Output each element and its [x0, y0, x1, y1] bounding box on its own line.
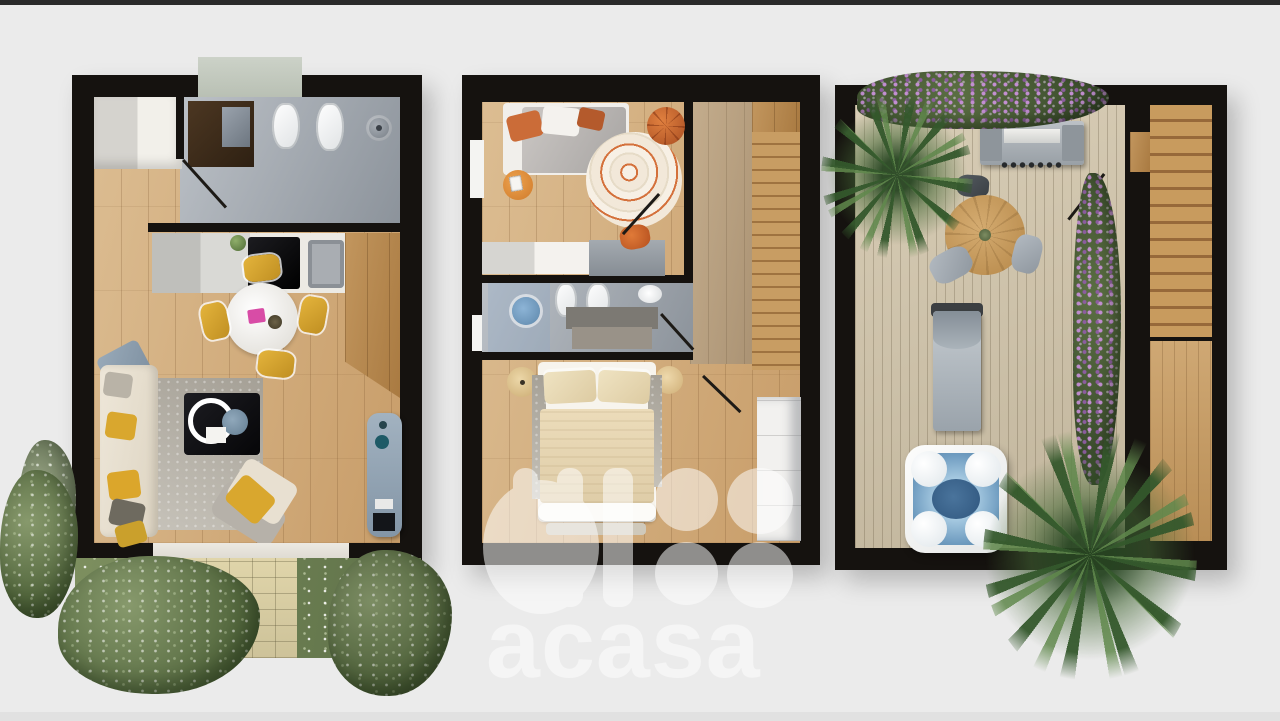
kitchen-plant	[230, 235, 246, 251]
hot-tub-seat-3	[911, 511, 947, 547]
table-centerpiece	[979, 229, 991, 241]
shower-head-center	[376, 125, 382, 131]
coffee-table-notepad	[206, 427, 226, 443]
watermark: acasa	[478, 438, 808, 690]
washbasin	[638, 285, 662, 303]
grill-shelf-right	[1062, 125, 1084, 161]
kitchen-sink	[308, 240, 344, 288]
grill-hood	[1004, 129, 1060, 143]
acasa-logo-bar-1	[513, 468, 538, 607]
hall-wardrobe	[94, 97, 182, 169]
acasa-logo-circle-1	[655, 468, 718, 531]
daybed-label-dark	[373, 513, 395, 531]
sofa-pillow-yellow-1	[104, 411, 137, 441]
kitchen-wall	[148, 223, 400, 232]
dining-chair-south	[257, 349, 296, 379]
sofa-pillow-gray	[102, 371, 133, 399]
staircase	[752, 132, 800, 370]
palm-tree-bottom	[983, 423, 1197, 687]
daybed-label-light	[375, 499, 393, 509]
wall-bed1-bath	[482, 275, 693, 283]
stair-connector	[1130, 132, 1150, 172]
left-door-upper	[470, 140, 484, 198]
nightstand-left-knob	[520, 380, 525, 385]
daybed-dot-large	[375, 435, 389, 449]
dining-chair-north	[243, 253, 282, 283]
watermark-brand: acasa	[486, 588, 761, 700]
toilet	[272, 103, 300, 149]
acasa-logo-bar-2	[557, 468, 583, 607]
sun-lounger	[933, 311, 981, 431]
daybed	[367, 413, 402, 537]
bedside-photo	[509, 175, 523, 192]
wall-stub	[176, 97, 184, 159]
bed2-pillow-left	[543, 370, 597, 405]
bed2-pillow-right	[597, 370, 651, 405]
entrance-mat	[198, 57, 302, 97]
table-gift-box	[247, 308, 266, 324]
tree-bottom-center	[328, 550, 452, 696]
shower-drain	[512, 297, 540, 325]
daybed-dot-small	[379, 421, 387, 429]
tree-bottom-left	[58, 556, 260, 694]
bottom-border-line	[0, 712, 1280, 721]
top-border-bar	[0, 0, 1280, 5]
palm-tree-top	[821, 91, 973, 259]
pouf	[647, 107, 685, 145]
hot-tub-center	[932, 479, 980, 519]
grill-knobs	[1000, 161, 1064, 169]
bush-left	[0, 470, 78, 618]
lounger-headrest	[933, 311, 981, 349]
bedroom1-wardrobe	[482, 242, 589, 274]
sofa-pillow-yellow-2	[106, 469, 141, 501]
stair-landing-top	[752, 102, 800, 132]
bath-mat-dark	[566, 307, 658, 329]
bidet	[316, 103, 344, 151]
pillow-white	[541, 105, 582, 137]
grill-shelf-left	[980, 125, 1002, 161]
floor-plan-left	[72, 75, 422, 565]
terrace-staircase	[1150, 105, 1212, 337]
vanity-mirror	[222, 107, 250, 147]
floor-plan-right	[835, 85, 1227, 570]
acasa-logo-bar-3	[603, 468, 633, 607]
hot-tub-seat-2	[965, 451, 1001, 487]
hallway-floor	[690, 102, 752, 364]
bath-mat-light	[572, 327, 652, 349]
acasa-logo-circle-2	[727, 468, 793, 534]
table-plant	[268, 315, 282, 329]
wall-bath-bed2	[482, 352, 693, 360]
round-patterned-rug	[586, 132, 682, 228]
floor-plan-render: acasa	[0, 0, 1280, 721]
